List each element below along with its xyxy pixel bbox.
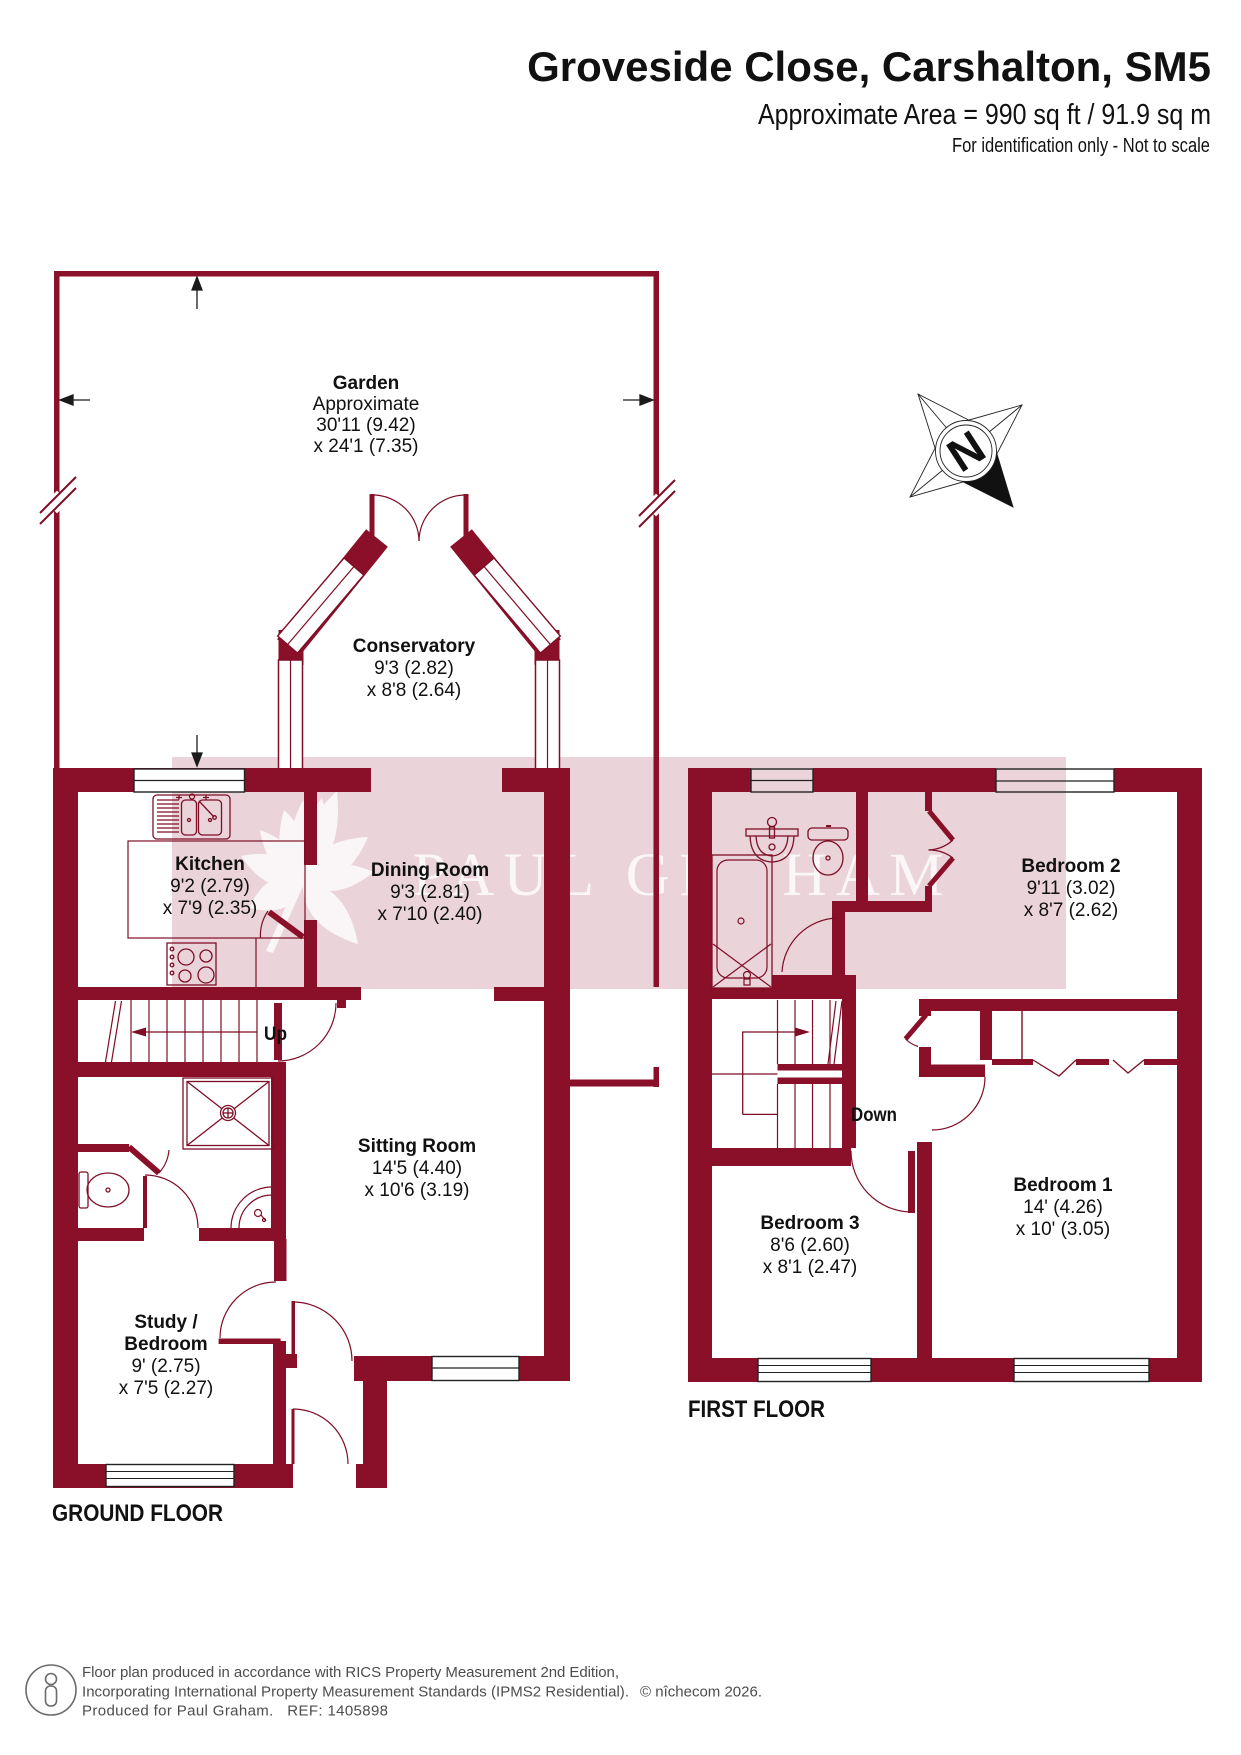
svg-text:Approximate Area = 990 sq ft /: Approximate Area = 990 sq ft / 91.9 sq m [758,99,1211,131]
svg-text:Bedroom 2: Bedroom 2 [1021,856,1120,877]
svg-text:9'3 (2.82): 9'3 (2.82) [374,658,454,679]
svg-text:9'2 (2.79): 9'2 (2.79) [170,876,250,897]
svg-text:x 7'10 (2.40): x 7'10 (2.40) [377,904,482,925]
svg-text:9' (2.75): 9' (2.75) [131,1356,200,1377]
svg-text:30'11 (9.42): 30'11 (9.42) [316,415,415,436]
svg-text:x 10'6 (3.19): x 10'6 (3.19) [364,1180,469,1201]
svg-text:x 8'7 (2.62): x 8'7 (2.62) [1024,900,1118,921]
svg-text:Conservatory: Conservatory [353,636,476,657]
svg-text:GROUND FLOOR: GROUND FLOOR [52,1500,223,1527]
svg-text:8'6 (2.60): 8'6 (2.60) [770,1235,850,1256]
svg-text:Study /: Study / [134,1312,198,1333]
svg-text:9'3 (2.81): 9'3 (2.81) [390,882,470,903]
svg-text:Dining Room: Dining Room [371,860,489,881]
svg-text:Bedroom 3: Bedroom 3 [760,1213,859,1234]
svg-text:Bedroom 1: Bedroom 1 [1013,1175,1113,1196]
svg-text:Garden: Garden [333,373,400,394]
svg-text:FIRST FLOOR: FIRST FLOOR [688,1396,825,1423]
svg-text:For identification only - Not: For identification only - Not to scale [952,135,1210,157]
svg-text:Produced for Paul Graham. RE: Produced for Paul Graham. REF: 1405898 [82,1703,388,1720]
svg-text:x 7'9 (2.35): x 7'9 (2.35) [163,898,257,919]
svg-text:x 10' (3.05): x 10' (3.05) [1016,1219,1110,1240]
svg-text:x 7'5 (2.27): x 7'5 (2.27) [119,1378,213,1399]
svg-text:Bedroom: Bedroom [124,1334,207,1355]
svg-text:Sitting Room: Sitting Room [358,1136,476,1157]
svg-text:14' (4.26): 14' (4.26) [1023,1197,1103,1218]
svg-text:Incorporating International Pr: Incorporating International Property Mea… [82,1684,629,1701]
svg-text:x 8'1 (2.47): x 8'1 (2.47) [763,1257,857,1278]
svg-text:Kitchen: Kitchen [175,854,245,875]
svg-text:© nîchecom 2026.: © nîchecom 2026. [640,1684,762,1701]
svg-text:Down: Down [851,1105,897,1126]
svg-text:Up: Up [264,1024,287,1045]
svg-text:Approximate: Approximate [313,394,420,415]
svg-text:x 8'8 (2.64): x 8'8 (2.64) [367,680,461,701]
svg-text:Floor plan produced in accorda: Floor plan produced in accordance with R… [82,1664,619,1681]
svg-text:9'11 (3.02): 9'11 (3.02) [1027,878,1116,899]
svg-text:Groveside Close, Carshalton, S: Groveside Close, Carshalton, SM5 [527,43,1211,90]
svg-text:x 24'1 (7.35): x 24'1 (7.35) [313,436,418,457]
svg-text:14'5 (4.40): 14'5 (4.40) [372,1158,462,1179]
